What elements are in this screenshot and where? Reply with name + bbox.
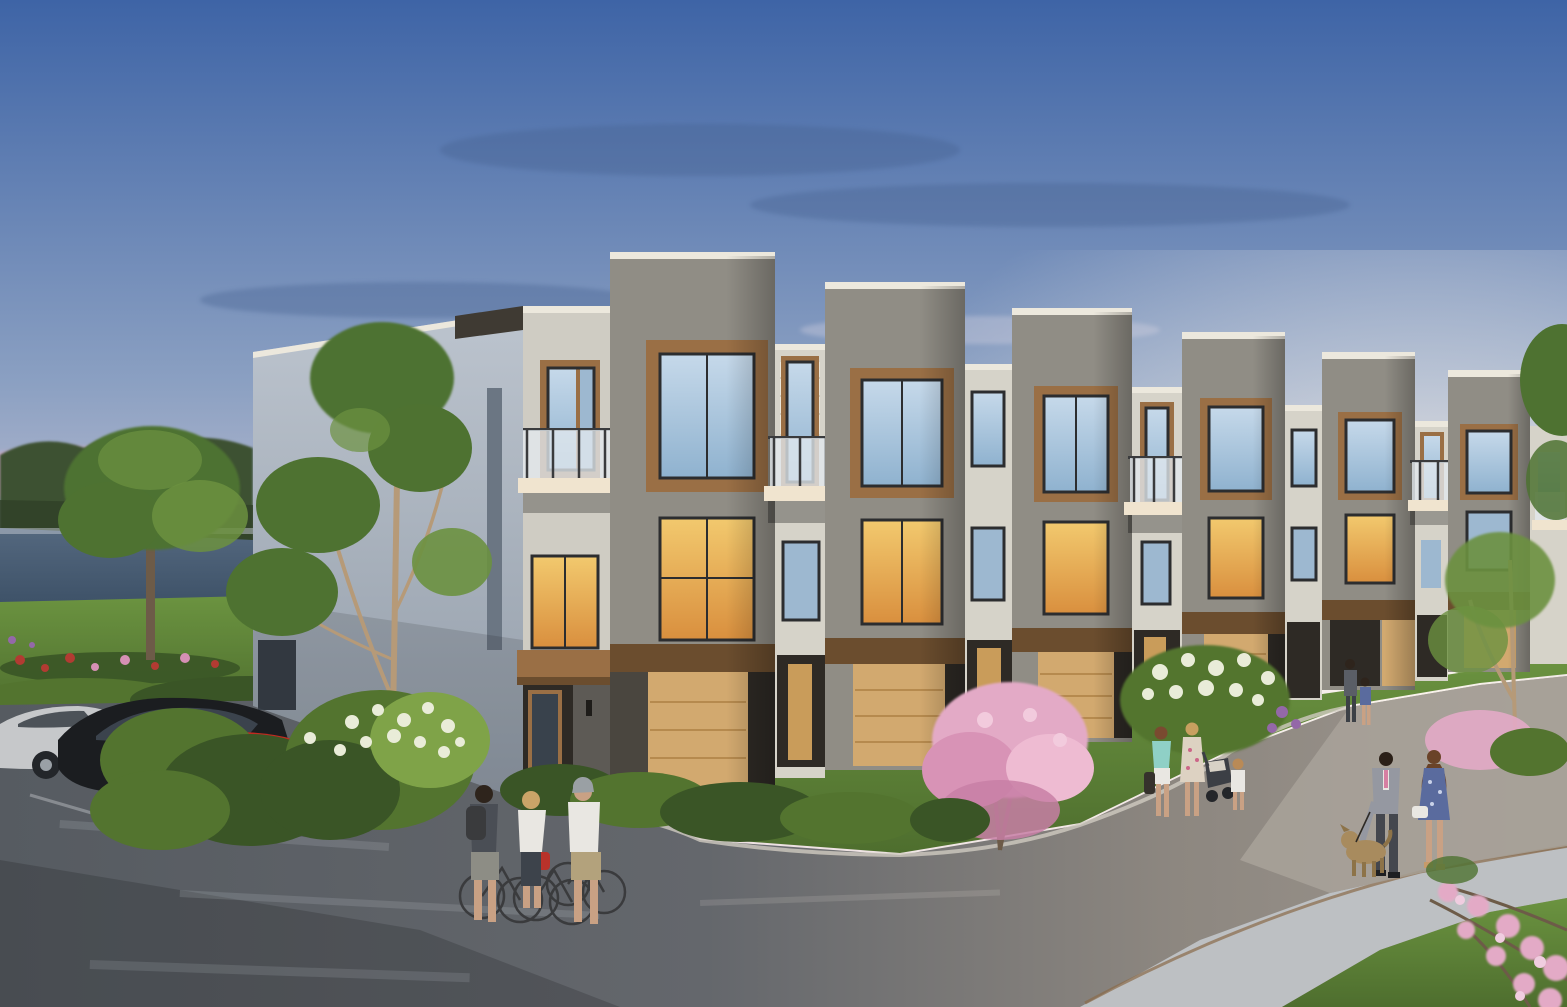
third-floor-window [1292,430,1316,486]
backpack [466,806,486,840]
entry-shadow [610,672,648,788]
blossom-leaves [1426,856,1478,884]
rendering-canvas: Photorealistic rendering of a row of mod… [0,0,1567,1007]
tower-3 [1012,308,1132,742]
bag [1144,772,1155,794]
tower-5 [1322,352,1415,690]
tower-2 [825,282,965,770]
tower-1 [610,252,775,788]
townhome-scene [0,0,1567,1007]
far-balcony [1532,520,1567,530]
bay-4 [1285,405,1322,700]
slot-window [487,388,502,650]
sconce [586,700,592,716]
unit-corner [512,306,618,800]
clutch [1412,806,1428,818]
second-floor-window [1421,540,1441,588]
entry [1287,622,1320,698]
balcony [518,428,615,513]
third-floor-window [972,392,1004,466]
second-floor-window [1142,542,1170,604]
second-floor-window [972,528,1004,600]
pink-tie [1384,770,1388,788]
second-floor-window [783,542,819,620]
entry-canopy [517,650,618,680]
entry-door [788,664,812,760]
second-floor-window [1292,528,1316,580]
